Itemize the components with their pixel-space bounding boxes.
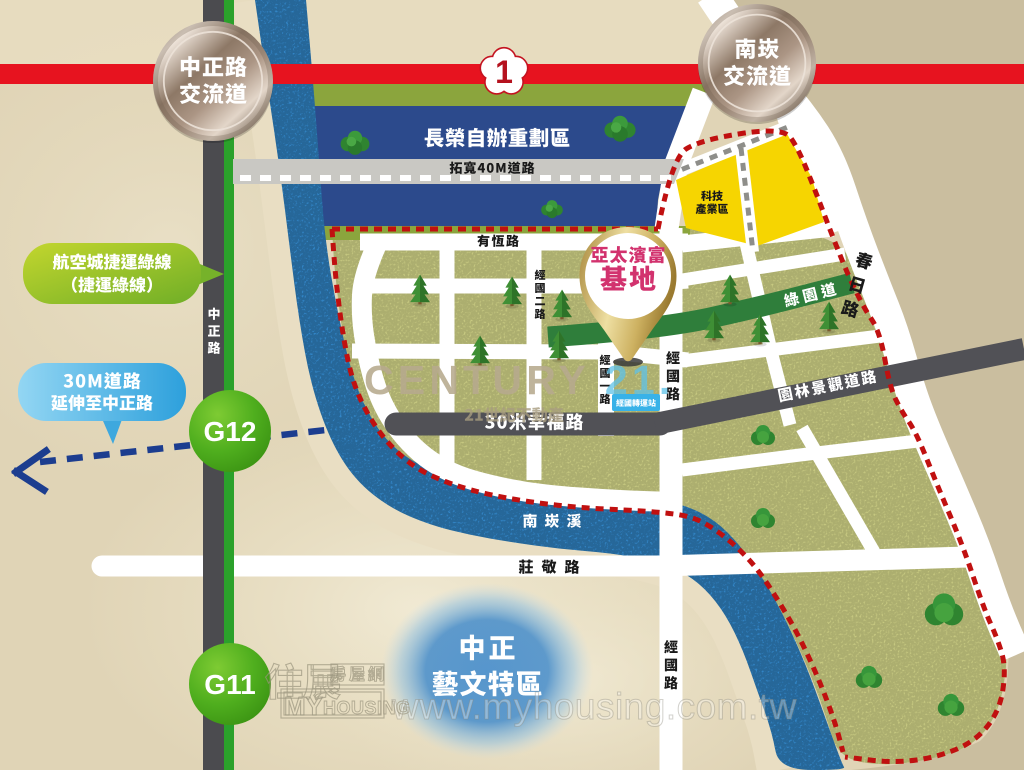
svg-text:CENTURY 21.: CENTURY 21.	[364, 357, 675, 403]
svg-text:www.myhousing.com.tw: www.myhousing.com.tw	[391, 686, 797, 727]
svg-text:1: 1	[495, 54, 513, 90]
svg-text:HOUSING: HOUSING	[323, 698, 411, 718]
svg-text:MY: MY	[284, 691, 323, 721]
svg-text:G12: G12	[204, 416, 257, 447]
svg-text:G11: G11	[204, 669, 255, 700]
